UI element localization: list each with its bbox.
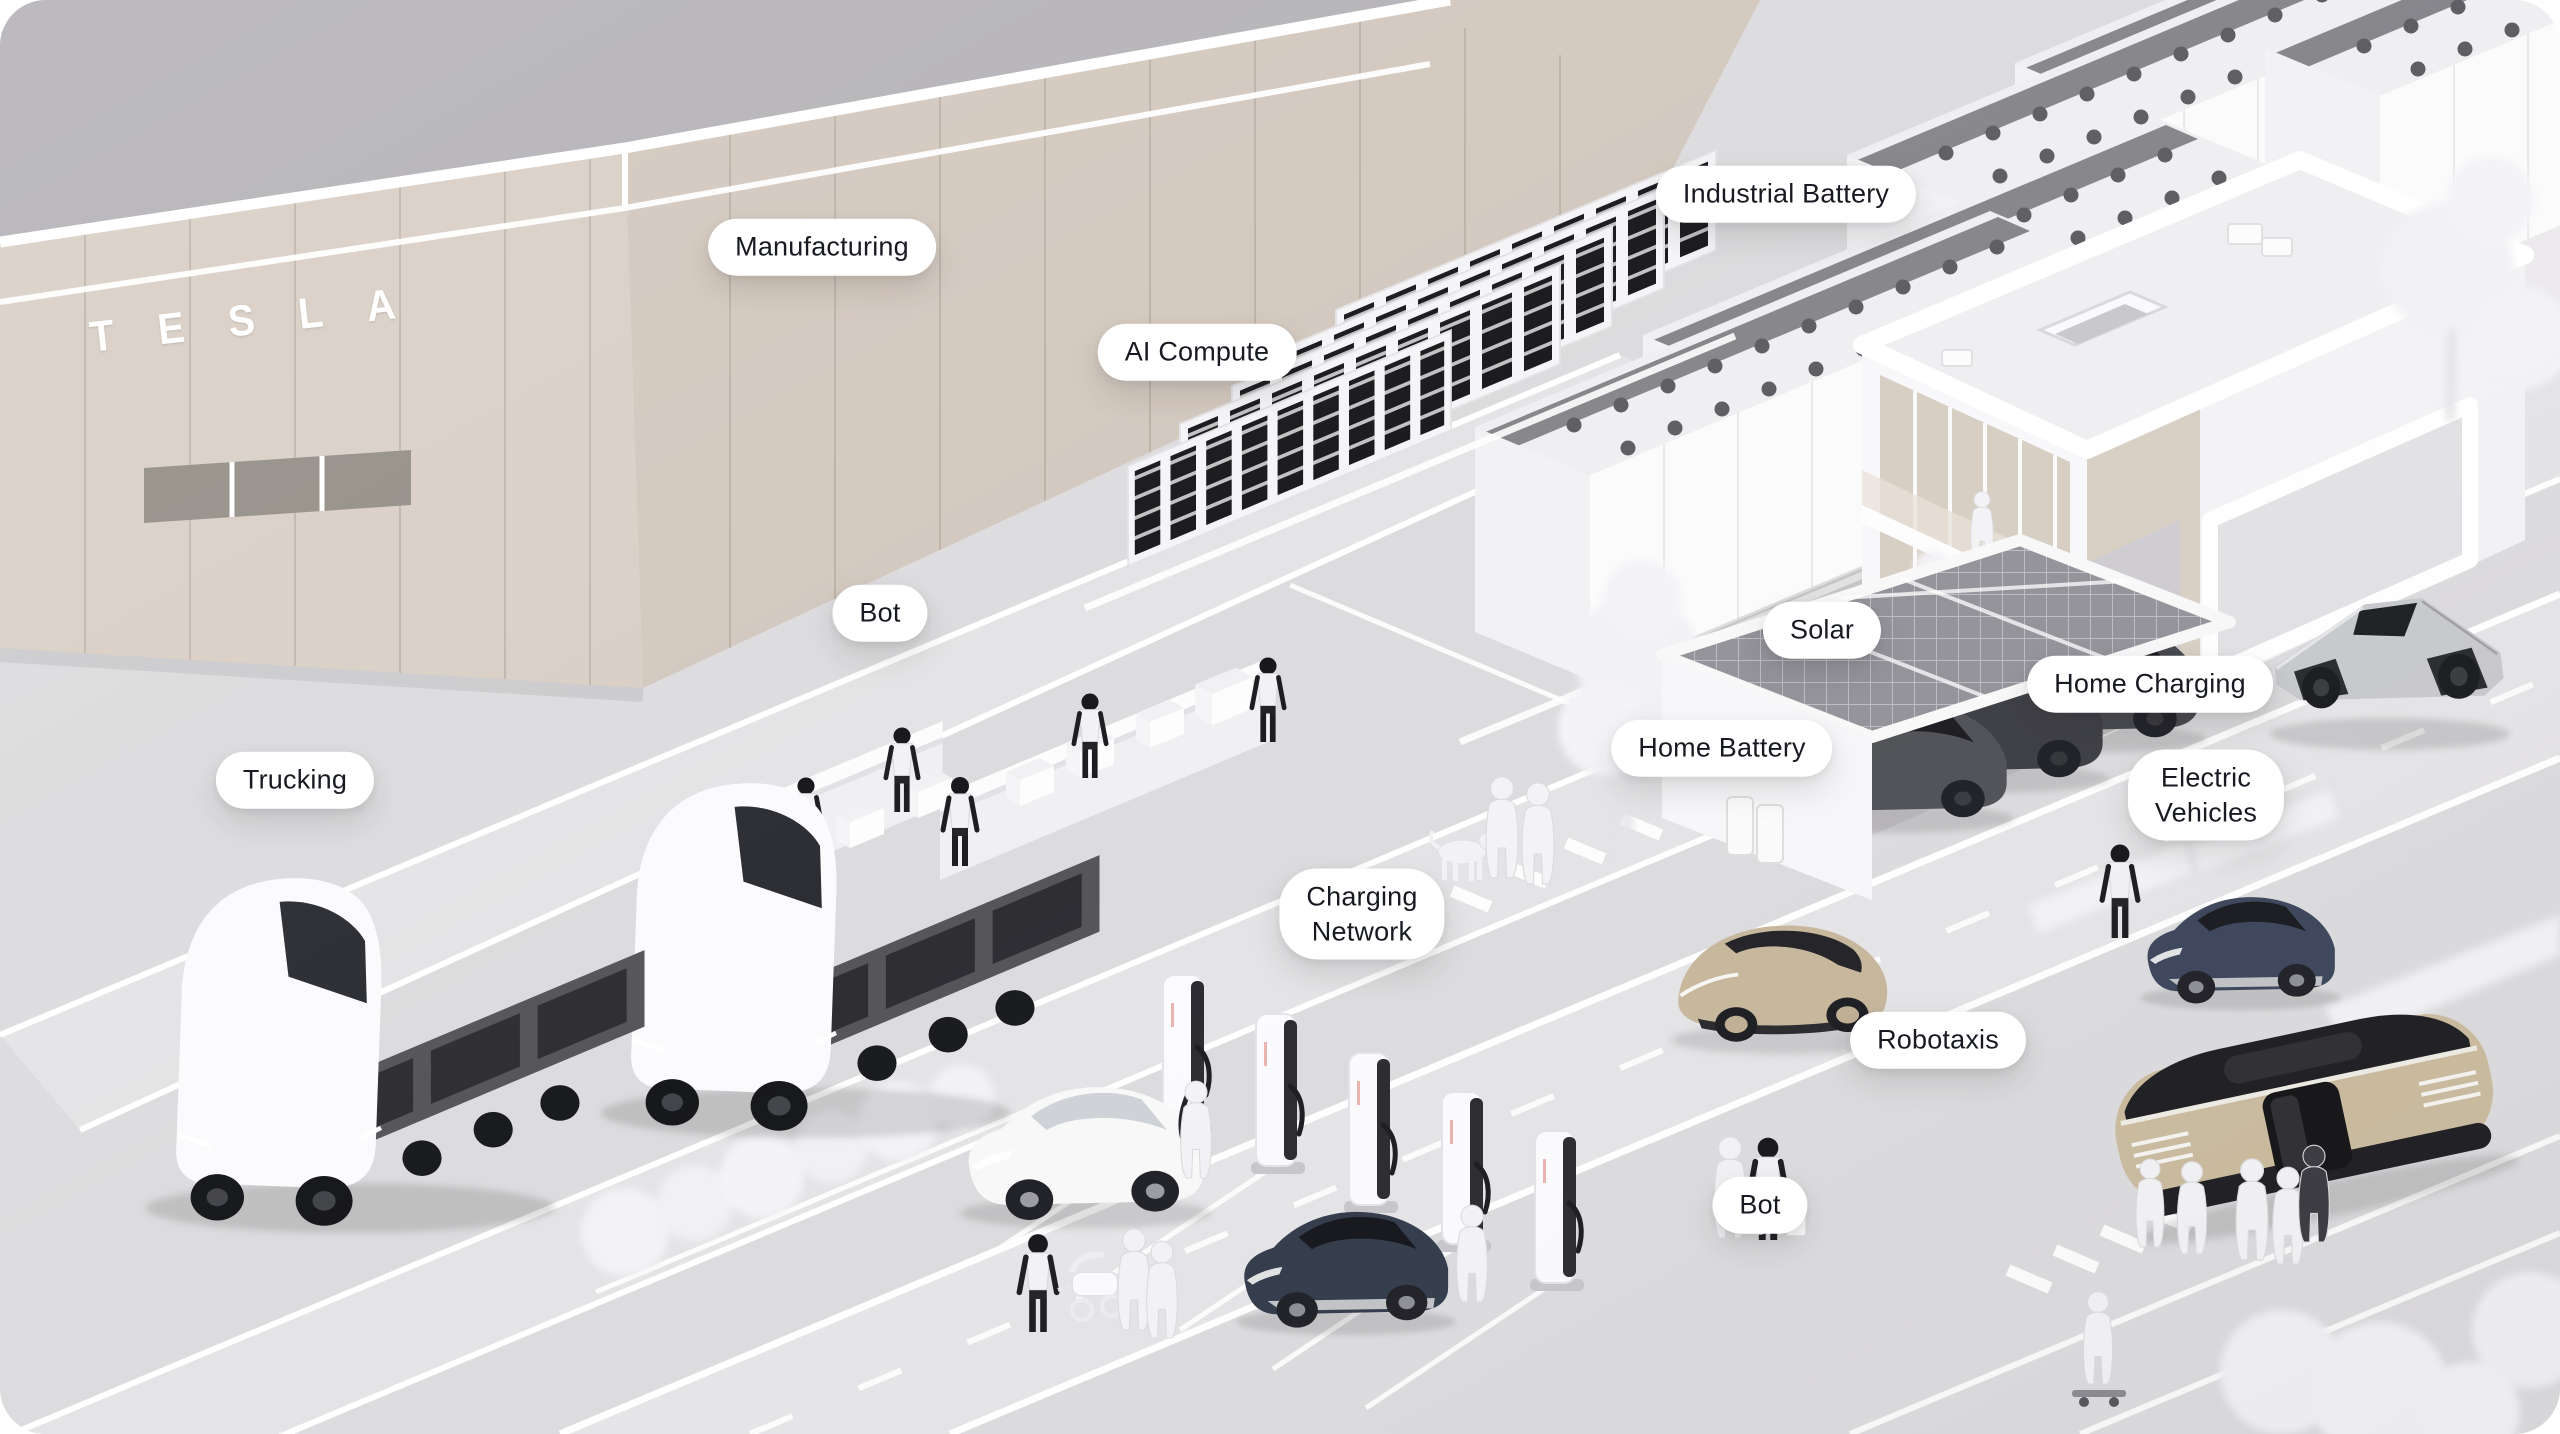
tesla-ecosystem-illustration: TESLA Manufacturing Industrial Battery A… bbox=[0, 0, 2560, 1434]
label-solar: Solar bbox=[1763, 602, 1881, 659]
label-home-charging: Home Charging bbox=[2027, 656, 2273, 713]
label-charging-network: Charging Network bbox=[1279, 868, 1444, 959]
label-manufacturing: Manufacturing bbox=[708, 219, 936, 276]
label-bot-street: Bot bbox=[1712, 1177, 1807, 1234]
label-industrial-battery: Industrial Battery bbox=[1656, 166, 1916, 223]
label-bot-factory: Bot bbox=[832, 585, 927, 642]
label-robotaxis: Robotaxis bbox=[1850, 1012, 2026, 1069]
scene-illustration bbox=[0, 0, 2560, 1434]
ambient-light bbox=[0, 0, 2560, 1434]
label-trucking: Trucking bbox=[216, 752, 374, 809]
label-home-battery: Home Battery bbox=[1611, 720, 1832, 777]
label-electric-vehicles: Electric Vehicles bbox=[2128, 749, 2284, 840]
label-ai-compute: AI Compute bbox=[1098, 324, 1297, 381]
